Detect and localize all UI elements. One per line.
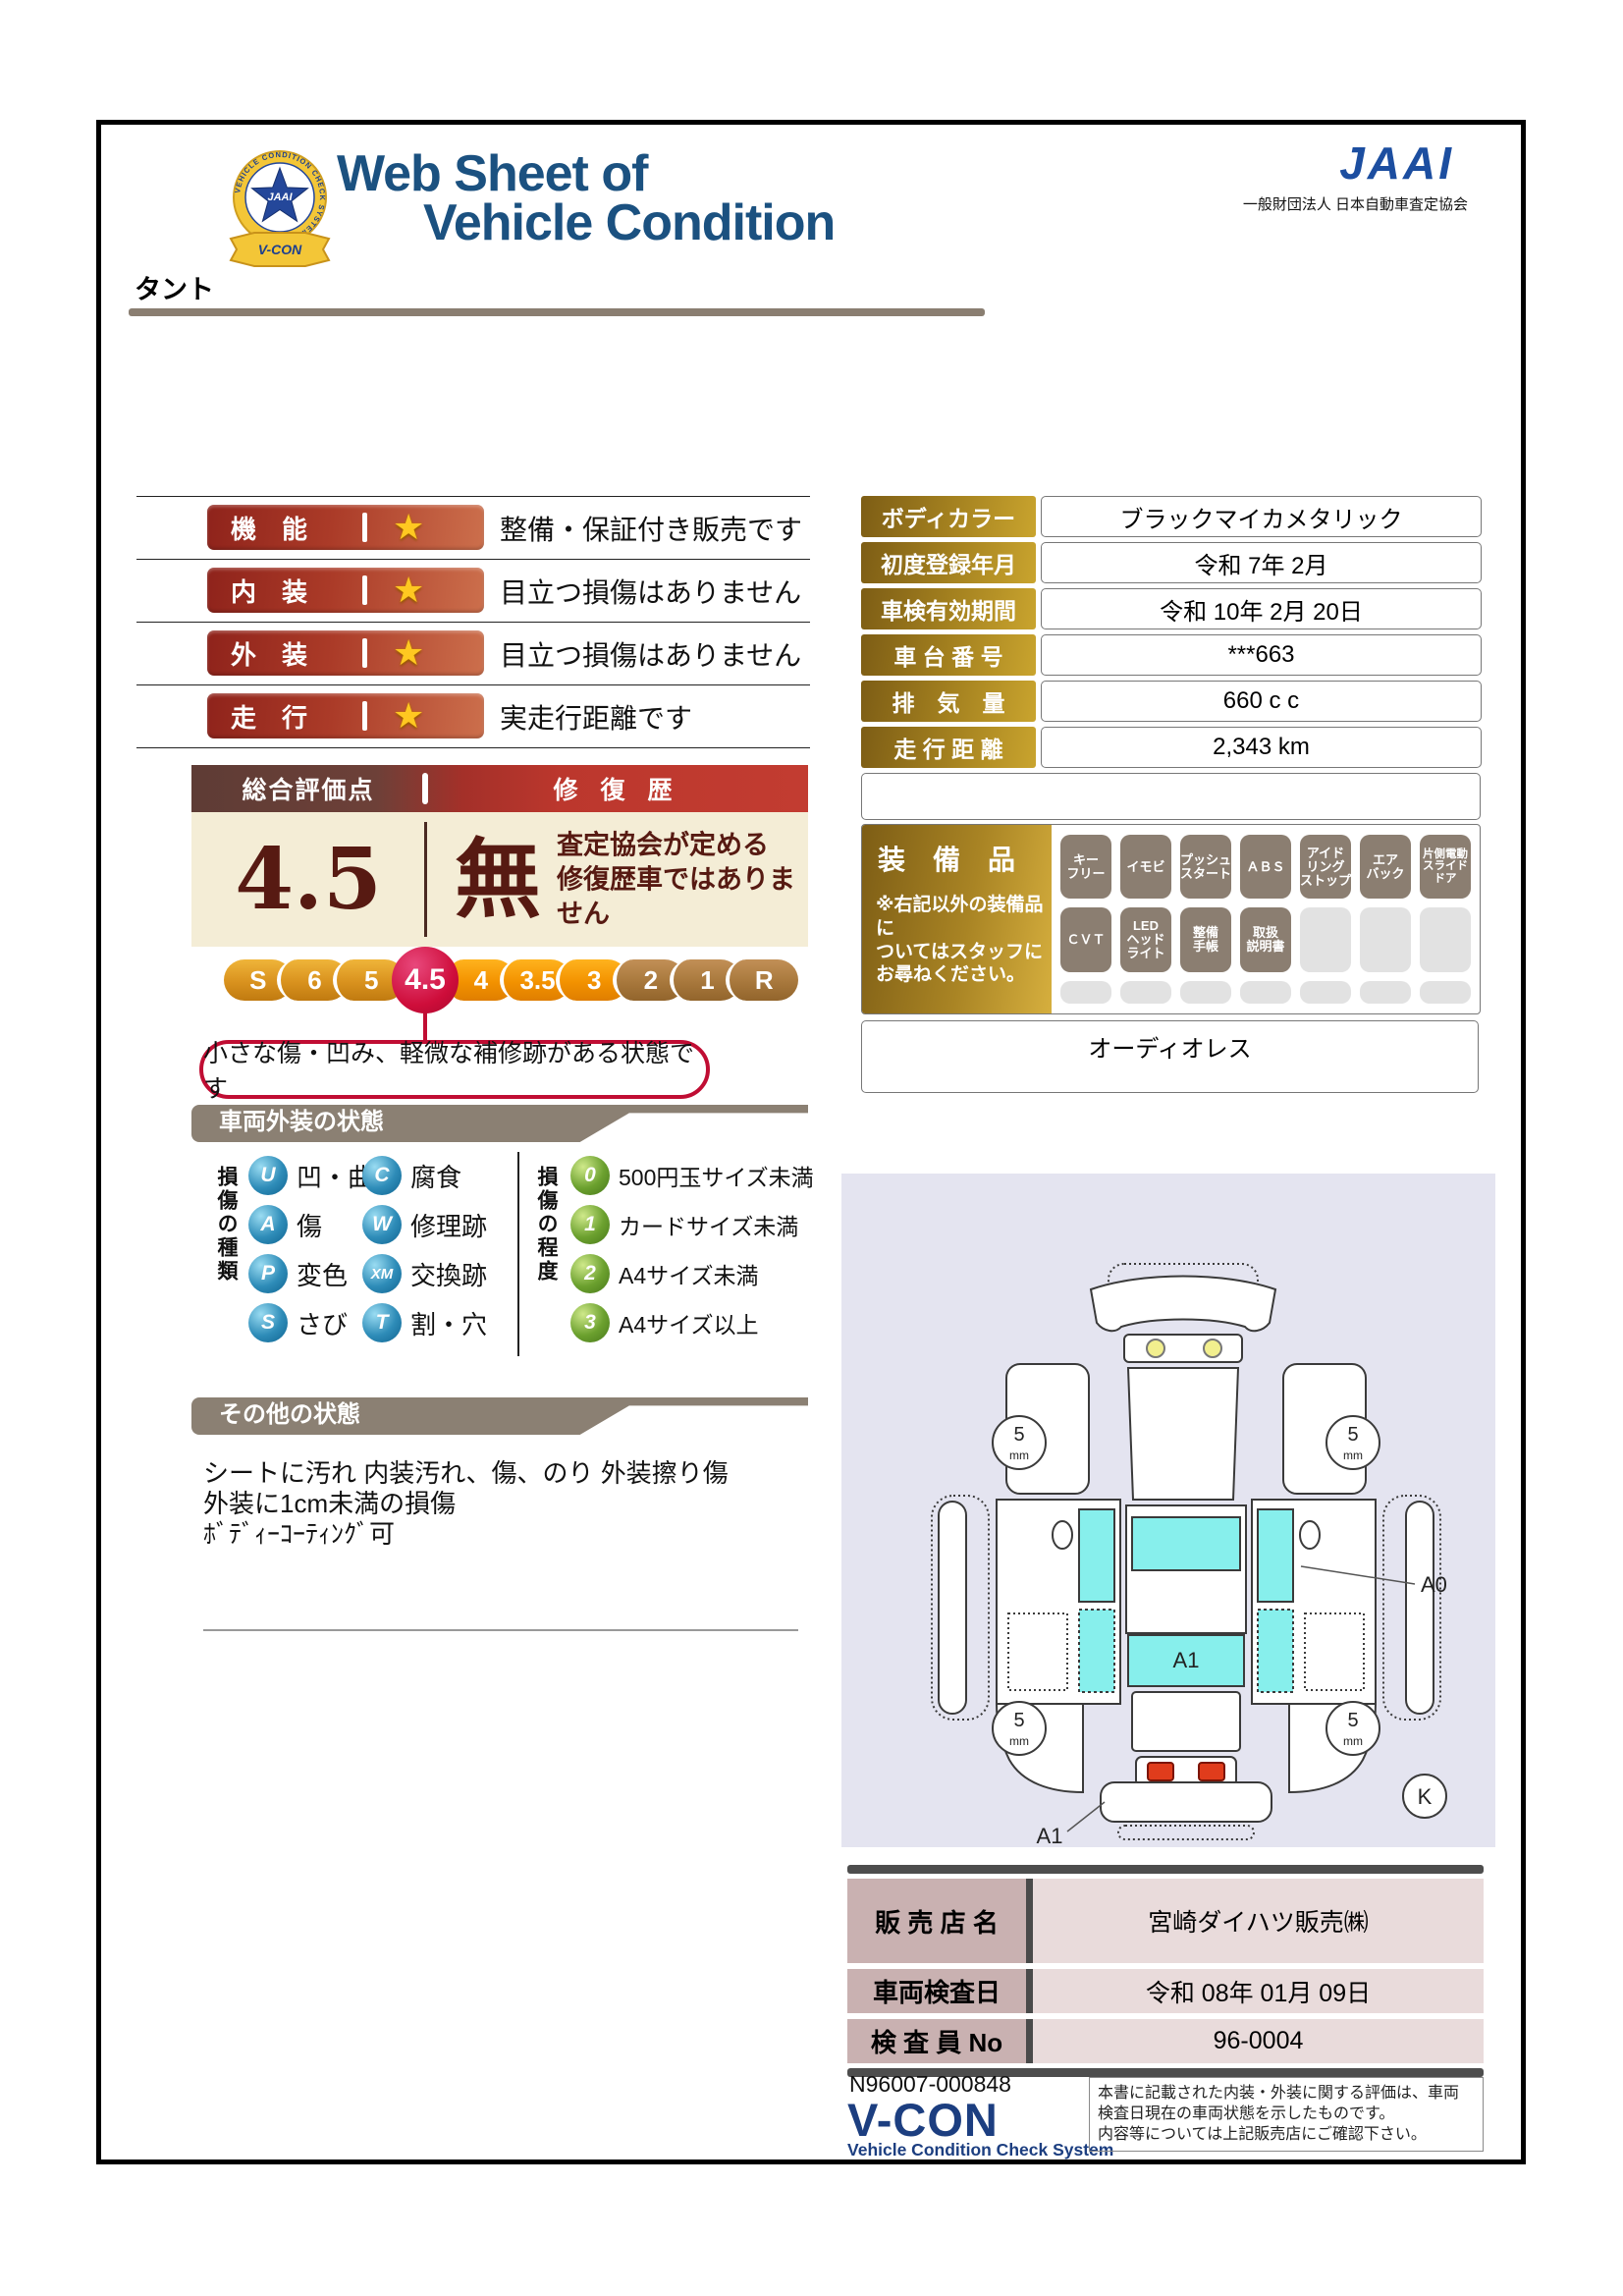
equipment-badge-empty xyxy=(1420,981,1471,1004)
rear-window-right xyxy=(1258,1610,1293,1692)
damage-label-a0: A0 xyxy=(1421,1572,1447,1597)
a1-leader-line xyxy=(1067,1802,1105,1831)
rating-bar: 外 装 ★ xyxy=(207,630,484,676)
footer-note: 本書に記載された内装・外装に関する評価は、車両 検査日現在の車両状態を示したもの… xyxy=(1089,2077,1484,2152)
table-row: 車両検査日 令和 08年 01月 09日 xyxy=(847,1969,1484,2013)
equipment-badge-empty xyxy=(1300,981,1351,1004)
tire-tread-value: 5 xyxy=(1347,1710,1358,1731)
tail-light-right-icon xyxy=(1199,1763,1224,1780)
equipment-badge: 取扱 説明書 xyxy=(1240,907,1291,971)
equipment-badge: イモビ xyxy=(1120,835,1171,899)
mirror-left-icon xyxy=(1053,1521,1072,1549)
rating-description: 目立つ損傷はありません xyxy=(500,634,801,674)
type-code-badge: C xyxy=(362,1156,402,1195)
equipment-note: ※右記以外の装備品に ついてはスタッフに お尋ねください。 xyxy=(876,894,1052,987)
legend-degree-item: 0 500円玉サイズ未満 xyxy=(570,1156,814,1195)
legend-type-item: P 変色 xyxy=(248,1254,348,1293)
legend-degree-item: 2 A4サイズ未満 xyxy=(570,1254,758,1293)
tire-tread-unit: mm xyxy=(1009,1734,1029,1748)
vcon-logo: V-CON xyxy=(847,2093,999,2147)
legend-degree-item: 3 A4サイズ以上 xyxy=(570,1303,758,1342)
other-section-header: その他の状態 xyxy=(191,1397,808,1435)
scale-segment-selected: 4.5 xyxy=(392,947,459,1013)
dealer-value: 宮崎ダイハツ販売㈱ xyxy=(1033,1879,1484,1963)
equipment-badge-empty xyxy=(1420,907,1471,971)
equipment-badge: 整備 手帳 xyxy=(1180,907,1231,971)
equipment-badge: プッシュ スタート xyxy=(1180,835,1231,899)
type-code-badge: A xyxy=(248,1205,288,1244)
rating-bar: 走 行 ★ xyxy=(207,693,484,738)
info-label: 車 台 番 号 xyxy=(861,634,1036,676)
equipment-badge-empty xyxy=(1360,981,1411,1004)
vcon-subtitle: Vehicle Condition Check System xyxy=(847,2140,1113,2160)
damage-type-label: 損傷の種類 xyxy=(211,1166,241,1284)
body-divider xyxy=(424,822,427,937)
rating-description: 整備・保証付き販売です xyxy=(500,509,802,548)
equipment-grid: キー フリー イモビ プッシュ スタート ＡＢＳ アイド リング ストップ エア… xyxy=(1052,825,1480,1013)
rating-row: 内 装 ★ 目立つ損傷はありません xyxy=(136,559,810,622)
windshield xyxy=(1128,1368,1238,1500)
rating-row: 外 装 ★ 目立つ損傷はありません xyxy=(136,622,810,684)
vcon-badge-logo: VEHICLE CONDITION CHECK SYSTEM JAAI V-CO… xyxy=(225,146,335,272)
rear-bumper xyxy=(1101,1782,1271,1822)
vehicle-info-table: ボディカラー ブラックマイカメタリック 初度登録年月 令和 7年 2月 車検有効… xyxy=(861,496,1482,773)
repair-history-value: 無 xyxy=(455,812,541,947)
info-value: 令和 10年 2月 20日 xyxy=(1041,588,1482,629)
headlight-left-icon xyxy=(1147,1339,1164,1357)
info-value: 660 c c xyxy=(1041,681,1482,722)
table-row: ボディカラー ブラックマイカメタリック xyxy=(861,496,1482,537)
table-row: 販 売 店 名 宮崎ダイハツ販売㈱ xyxy=(847,1879,1484,1963)
table-row: 初度登録年月 令和 7年 2月 xyxy=(861,542,1482,583)
page-title-line2: Vehicle Condition xyxy=(423,193,835,252)
info-label: 走 行 距 離 xyxy=(861,727,1036,768)
info-value: ***663 xyxy=(1041,634,1482,676)
degree-code-badge: 0 xyxy=(570,1156,610,1195)
side-sill-right xyxy=(1406,1502,1434,1714)
score-scale: S 6 5 4.5 4 3.5 3 2 1 R xyxy=(224,957,798,1003)
jaai-logo-block: JAAI 一般財団法人 日本自動車査定協会 xyxy=(1122,137,1468,214)
tire-tread-value: 5 xyxy=(1347,1424,1358,1446)
type-code-badge: S xyxy=(248,1303,288,1342)
equipment-badge-empty xyxy=(1060,981,1111,1004)
other-section-divider xyxy=(203,1629,798,1631)
key-label-k: K xyxy=(1418,1784,1433,1809)
equipment-badge: ＣＶＴ xyxy=(1060,907,1111,971)
table-row: 車検有効期間 令和 10年 2月 20日 xyxy=(861,588,1482,629)
rating-description: 目立つ損傷はありません xyxy=(500,572,801,611)
dealer-value: 96-0004 xyxy=(1033,2019,1484,2063)
equipment-block: 装 備 品 ※右記以外の装備品に ついてはスタッフに お尋ねください。 キー フ… xyxy=(861,824,1481,1014)
info-value: 令和 7年 2月 xyxy=(1041,542,1482,583)
vehicle-name: タント xyxy=(135,268,214,306)
dealer-label: 検 査 員 No xyxy=(847,2019,1033,2063)
jaai-logo: JAAI xyxy=(1122,137,1454,190)
legend-type-item: C 腐食 xyxy=(362,1156,461,1195)
table-row: 検 査 員 No 96-0004 xyxy=(847,2019,1484,2063)
tire-tread-unit: mm xyxy=(1343,1449,1363,1462)
overall-score-value: 4.5 xyxy=(191,812,425,947)
pipe-divider xyxy=(362,575,367,605)
equipment-badge: ＡＢＳ xyxy=(1240,835,1291,899)
dealer-table: 販 売 店 名 宮崎ダイハツ販売㈱ 車両検査日 令和 08年 01月 09日 検… xyxy=(847,1865,1484,2077)
legend-type-item: T 割・穴 xyxy=(362,1303,487,1342)
rear-bumper-outline xyxy=(1118,1826,1254,1839)
dealer-label: 販 売 店 名 xyxy=(847,1879,1033,1963)
damage-label-a1-window: A1 xyxy=(1173,1648,1200,1672)
legend-type-item: A 傷 xyxy=(248,1205,322,1244)
rating-row: 走 行 ★ 実走行距離です xyxy=(136,684,810,747)
equipment-badge-empty xyxy=(1120,981,1171,1004)
tire-tread-unit: mm xyxy=(1343,1734,1363,1748)
equipment-title-panel: 装 備 品 ※右記以外の装備品に ついてはスタッフに お尋ねください。 xyxy=(862,825,1052,1013)
pipe-divider xyxy=(362,513,367,542)
front-window-right xyxy=(1258,1509,1293,1602)
dealer-label: 車両検査日 xyxy=(847,1969,1033,2013)
table-row: 車 台 番 号 ***663 xyxy=(861,634,1482,676)
info-empty-row xyxy=(861,773,1481,820)
equipment-badge: 片側電動 スライド ドア xyxy=(1420,835,1471,899)
damage-label-a1-bumper: A1 xyxy=(1037,1824,1063,1847)
degree-code-badge: 3 xyxy=(570,1303,610,1342)
info-label: ボディカラー xyxy=(861,496,1036,537)
pipe-divider xyxy=(362,638,367,668)
type-code-badge: W xyxy=(362,1205,402,1244)
equipment-badge-empty xyxy=(1240,981,1291,1004)
title-divider xyxy=(129,308,985,316)
star-icon: ★ xyxy=(393,505,424,550)
badge-ribbon-text: V-CON xyxy=(258,242,302,257)
equipment-badge-empty xyxy=(1300,907,1351,971)
type-code-badge: U xyxy=(248,1156,288,1195)
repair-history-note: 査定協会が定める 修復歴車ではありません xyxy=(557,828,808,931)
rating-label: 走 行 xyxy=(207,698,358,735)
legend-degree-item: 1 カードサイズ未満 xyxy=(570,1205,798,1244)
legend-type-item: XM 交換跡 xyxy=(362,1254,487,1293)
rear-hatch xyxy=(1132,1692,1240,1751)
legend-divider xyxy=(517,1152,519,1356)
tire-tread-value: 5 xyxy=(1013,1424,1024,1446)
exterior-section-header: 車両外装の状態 xyxy=(191,1105,808,1142)
front-window-left xyxy=(1079,1509,1114,1602)
overall-score-title: 総合評価点 xyxy=(191,765,425,812)
overall-score-header: 総合評価点 修 復 歴 xyxy=(191,765,808,812)
overall-score-body: 4.5 無 査定協会が定める 修復歴車ではありません xyxy=(191,812,808,947)
info-value: ブラックマイカメタリック xyxy=(1041,496,1482,537)
legend-type-item: U 凹・曲 xyxy=(248,1156,373,1195)
rating-bar: 内 装 ★ xyxy=(207,568,484,613)
type-code-badge: P xyxy=(248,1254,288,1293)
roof-front-window xyxy=(1132,1517,1240,1570)
star-icon: ★ xyxy=(393,568,424,613)
star-icon: ★ xyxy=(393,630,424,676)
headlight-right-icon xyxy=(1204,1339,1221,1357)
type-code-badge: T xyxy=(362,1303,402,1342)
equipment-badge: LED ヘッド ライト xyxy=(1120,907,1171,971)
rating-row: 機 能 ★ 整備・保証付き販売です xyxy=(136,496,810,559)
badge-center-text: JAAI xyxy=(267,191,293,203)
equipment-extra: オーディオレス xyxy=(861,1020,1479,1093)
star-icon: ★ xyxy=(393,693,424,738)
rating-bar: 機 能 ★ xyxy=(207,505,484,550)
jaai-organization: 一般財団法人 日本自動車査定協会 xyxy=(1122,193,1468,214)
hood xyxy=(1091,1277,1275,1332)
headlight-panel xyxy=(1124,1335,1242,1362)
repair-history-title: 修 復 歴 xyxy=(425,765,808,812)
mirror-right-icon xyxy=(1300,1521,1320,1549)
info-label: 車検有効期間 xyxy=(861,588,1036,629)
equipment-title: 装 備 品 xyxy=(878,839,1052,878)
table-top-bar xyxy=(847,1865,1484,1874)
pipe-divider xyxy=(362,701,367,731)
tire-tread-unit: mm xyxy=(1009,1449,1029,1462)
sheet-page: VEHICLE CONDITION CHECK SYSTEM JAAI V-CO… xyxy=(96,120,1526,2164)
degree-code-badge: 2 xyxy=(570,1254,610,1293)
tire-tread-value: 5 xyxy=(1013,1710,1024,1731)
vehicle-damage-diagram: 5 mm 5 mm 5 mm 5 mm A1 A0 A1 K xyxy=(841,1174,1495,1847)
side-sill-left xyxy=(939,1502,966,1714)
equipment-badge: エア バック xyxy=(1360,835,1411,899)
info-label: 排 気 量 xyxy=(861,681,1036,722)
rating-label: 機 能 xyxy=(207,510,358,546)
other-condition-text: シートに汚れ 内装汚れ、傷、のり 外装擦り傷 外装に1cm未満の損傷 ﾎﾞﾃﾞｨ… xyxy=(203,1458,729,1551)
rating-label: 内 装 xyxy=(207,573,358,609)
damage-degree-label: 損傷の程度 xyxy=(531,1166,561,1284)
table-row: 排 気 量 660 c c xyxy=(861,681,1482,722)
equipment-badge: アイド リング ストップ xyxy=(1300,835,1351,899)
info-value: 2,343 km xyxy=(1041,727,1482,768)
legend-type-item: W 修理跡 xyxy=(362,1205,487,1244)
table-row: 走 行 距 離 2,343 km xyxy=(861,727,1482,768)
degree-code-badge: 1 xyxy=(570,1205,610,1244)
type-code-badge: XM xyxy=(362,1254,402,1293)
dealer-value: 令和 08年 01月 09日 xyxy=(1033,1969,1484,2013)
legend-type-item: S さび xyxy=(248,1303,348,1342)
scale-segment: R xyxy=(726,959,798,1001)
tail-light-left-icon xyxy=(1148,1763,1173,1780)
rating-description: 実走行距離です xyxy=(500,697,692,737)
equipment-badge: キー フリー xyxy=(1060,835,1111,899)
equipment-badge-empty xyxy=(1360,907,1411,971)
info-label: 初度登録年月 xyxy=(861,542,1036,583)
rating-label: 外 装 xyxy=(207,635,358,672)
rear-window-left xyxy=(1079,1610,1114,1692)
equipment-badge-empty xyxy=(1180,981,1231,1004)
rating-rows: 機 能 ★ 整備・保証付き販売です 内 装 ★ 目立つ損傷はありません 外 装 … xyxy=(136,496,810,748)
car-diagram-svg: 5 mm 5 mm 5 mm 5 mm A1 A0 A1 K xyxy=(841,1174,1495,1847)
score-explanation-bubble: 小さな傷・凹み、軽微な補修跡がある状態です xyxy=(199,1040,710,1099)
